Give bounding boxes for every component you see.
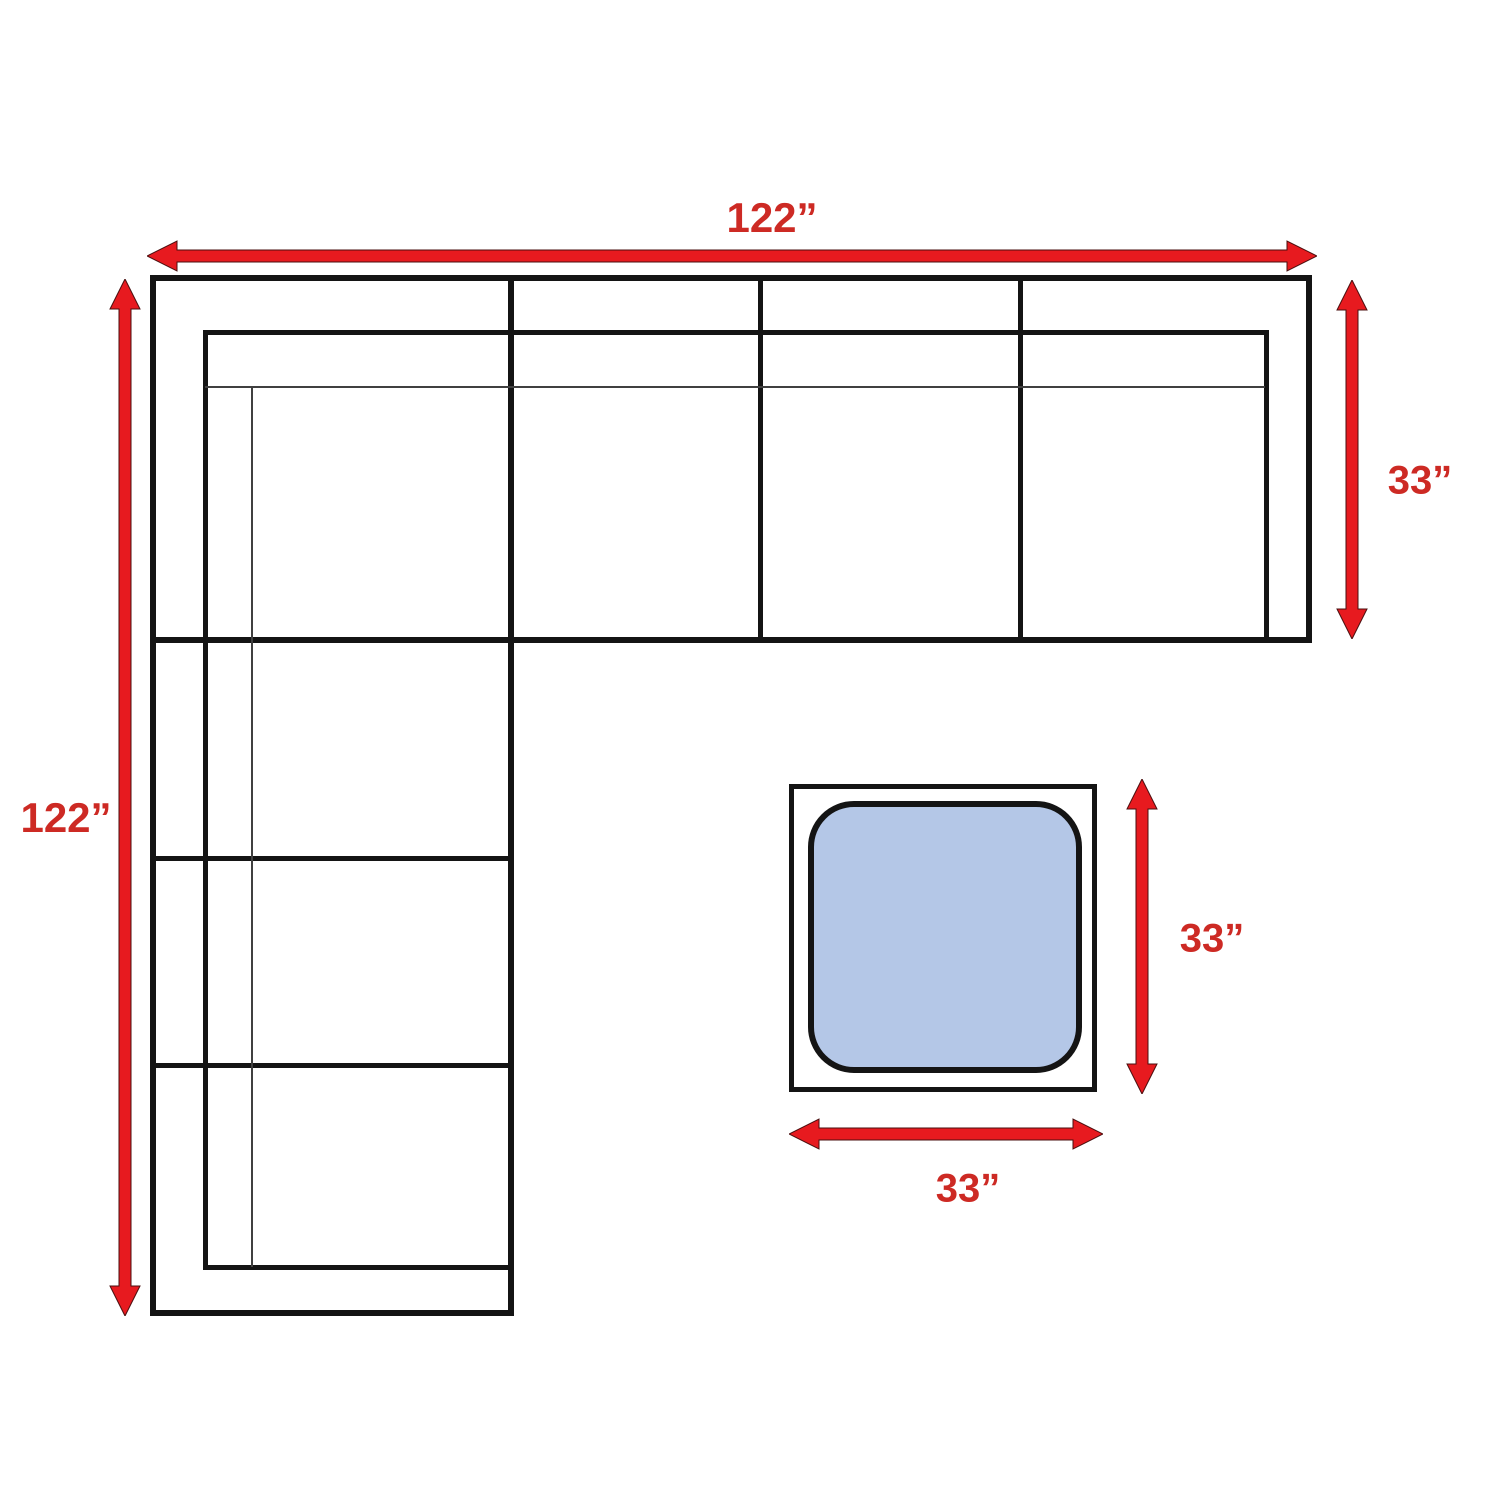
sofa-outer-right-edge	[1306, 275, 1312, 643]
sofa-armrest-inner-line-right	[1264, 330, 1269, 643]
sofa-seat-cushion-line-vertical	[251, 386, 253, 1267]
furniture-dimension-diagram: 122” 122” 33” 33” 33”	[0, 0, 1500, 1500]
sofa-depth-arrow	[1336, 280, 1368, 639]
sofa-corner-seam-and-left-wing-edge	[508, 275, 514, 1316]
sofa-width-arrow	[147, 240, 1317, 272]
sofa-seat-seam-vertical-1	[758, 277, 763, 643]
sofa-seat-seam-horizontal-2	[152, 1063, 512, 1068]
sofa-seat-cushion-line-horizontal	[205, 386, 1265, 388]
sofa-outer-top-edge	[152, 275, 1312, 281]
sofa-armrest-inner-line-bottom	[203, 1265, 514, 1270]
ottoman-height-label: 33”	[1180, 917, 1245, 962]
double-arrow-shape	[110, 279, 140, 1316]
double-arrow-shape	[789, 1119, 1103, 1149]
sofa-width-label: 122”	[726, 194, 817, 242]
double-arrow-shape	[147, 241, 1317, 271]
sofa-outer-bottom-edge	[152, 1310, 514, 1316]
sofa-length-label: 122”	[20, 794, 111, 842]
double-arrow-shape	[1127, 779, 1157, 1094]
sofa-seat-seam-horizontal-1	[152, 856, 512, 861]
sofa-length-arrow	[109, 279, 141, 1316]
ottoman-cushion-top	[808, 801, 1082, 1073]
ottoman-width-arrow	[789, 1118, 1103, 1150]
sofa-backrest-inner-line-top	[203, 330, 1269, 335]
sofa-backrest-inner-line-left	[203, 330, 208, 1270]
sofa-depth-label: 33”	[1388, 459, 1453, 504]
sofa-outer-left-edge	[150, 275, 156, 1316]
double-arrow-shape	[1337, 280, 1367, 639]
ottoman-width-label: 33”	[936, 1167, 1001, 1212]
sofa-front-edge-horizontal-wing	[152, 637, 1312, 643]
ottoman-height-arrow	[1126, 779, 1158, 1094]
sofa-seat-seam-vertical-2	[1018, 277, 1023, 643]
